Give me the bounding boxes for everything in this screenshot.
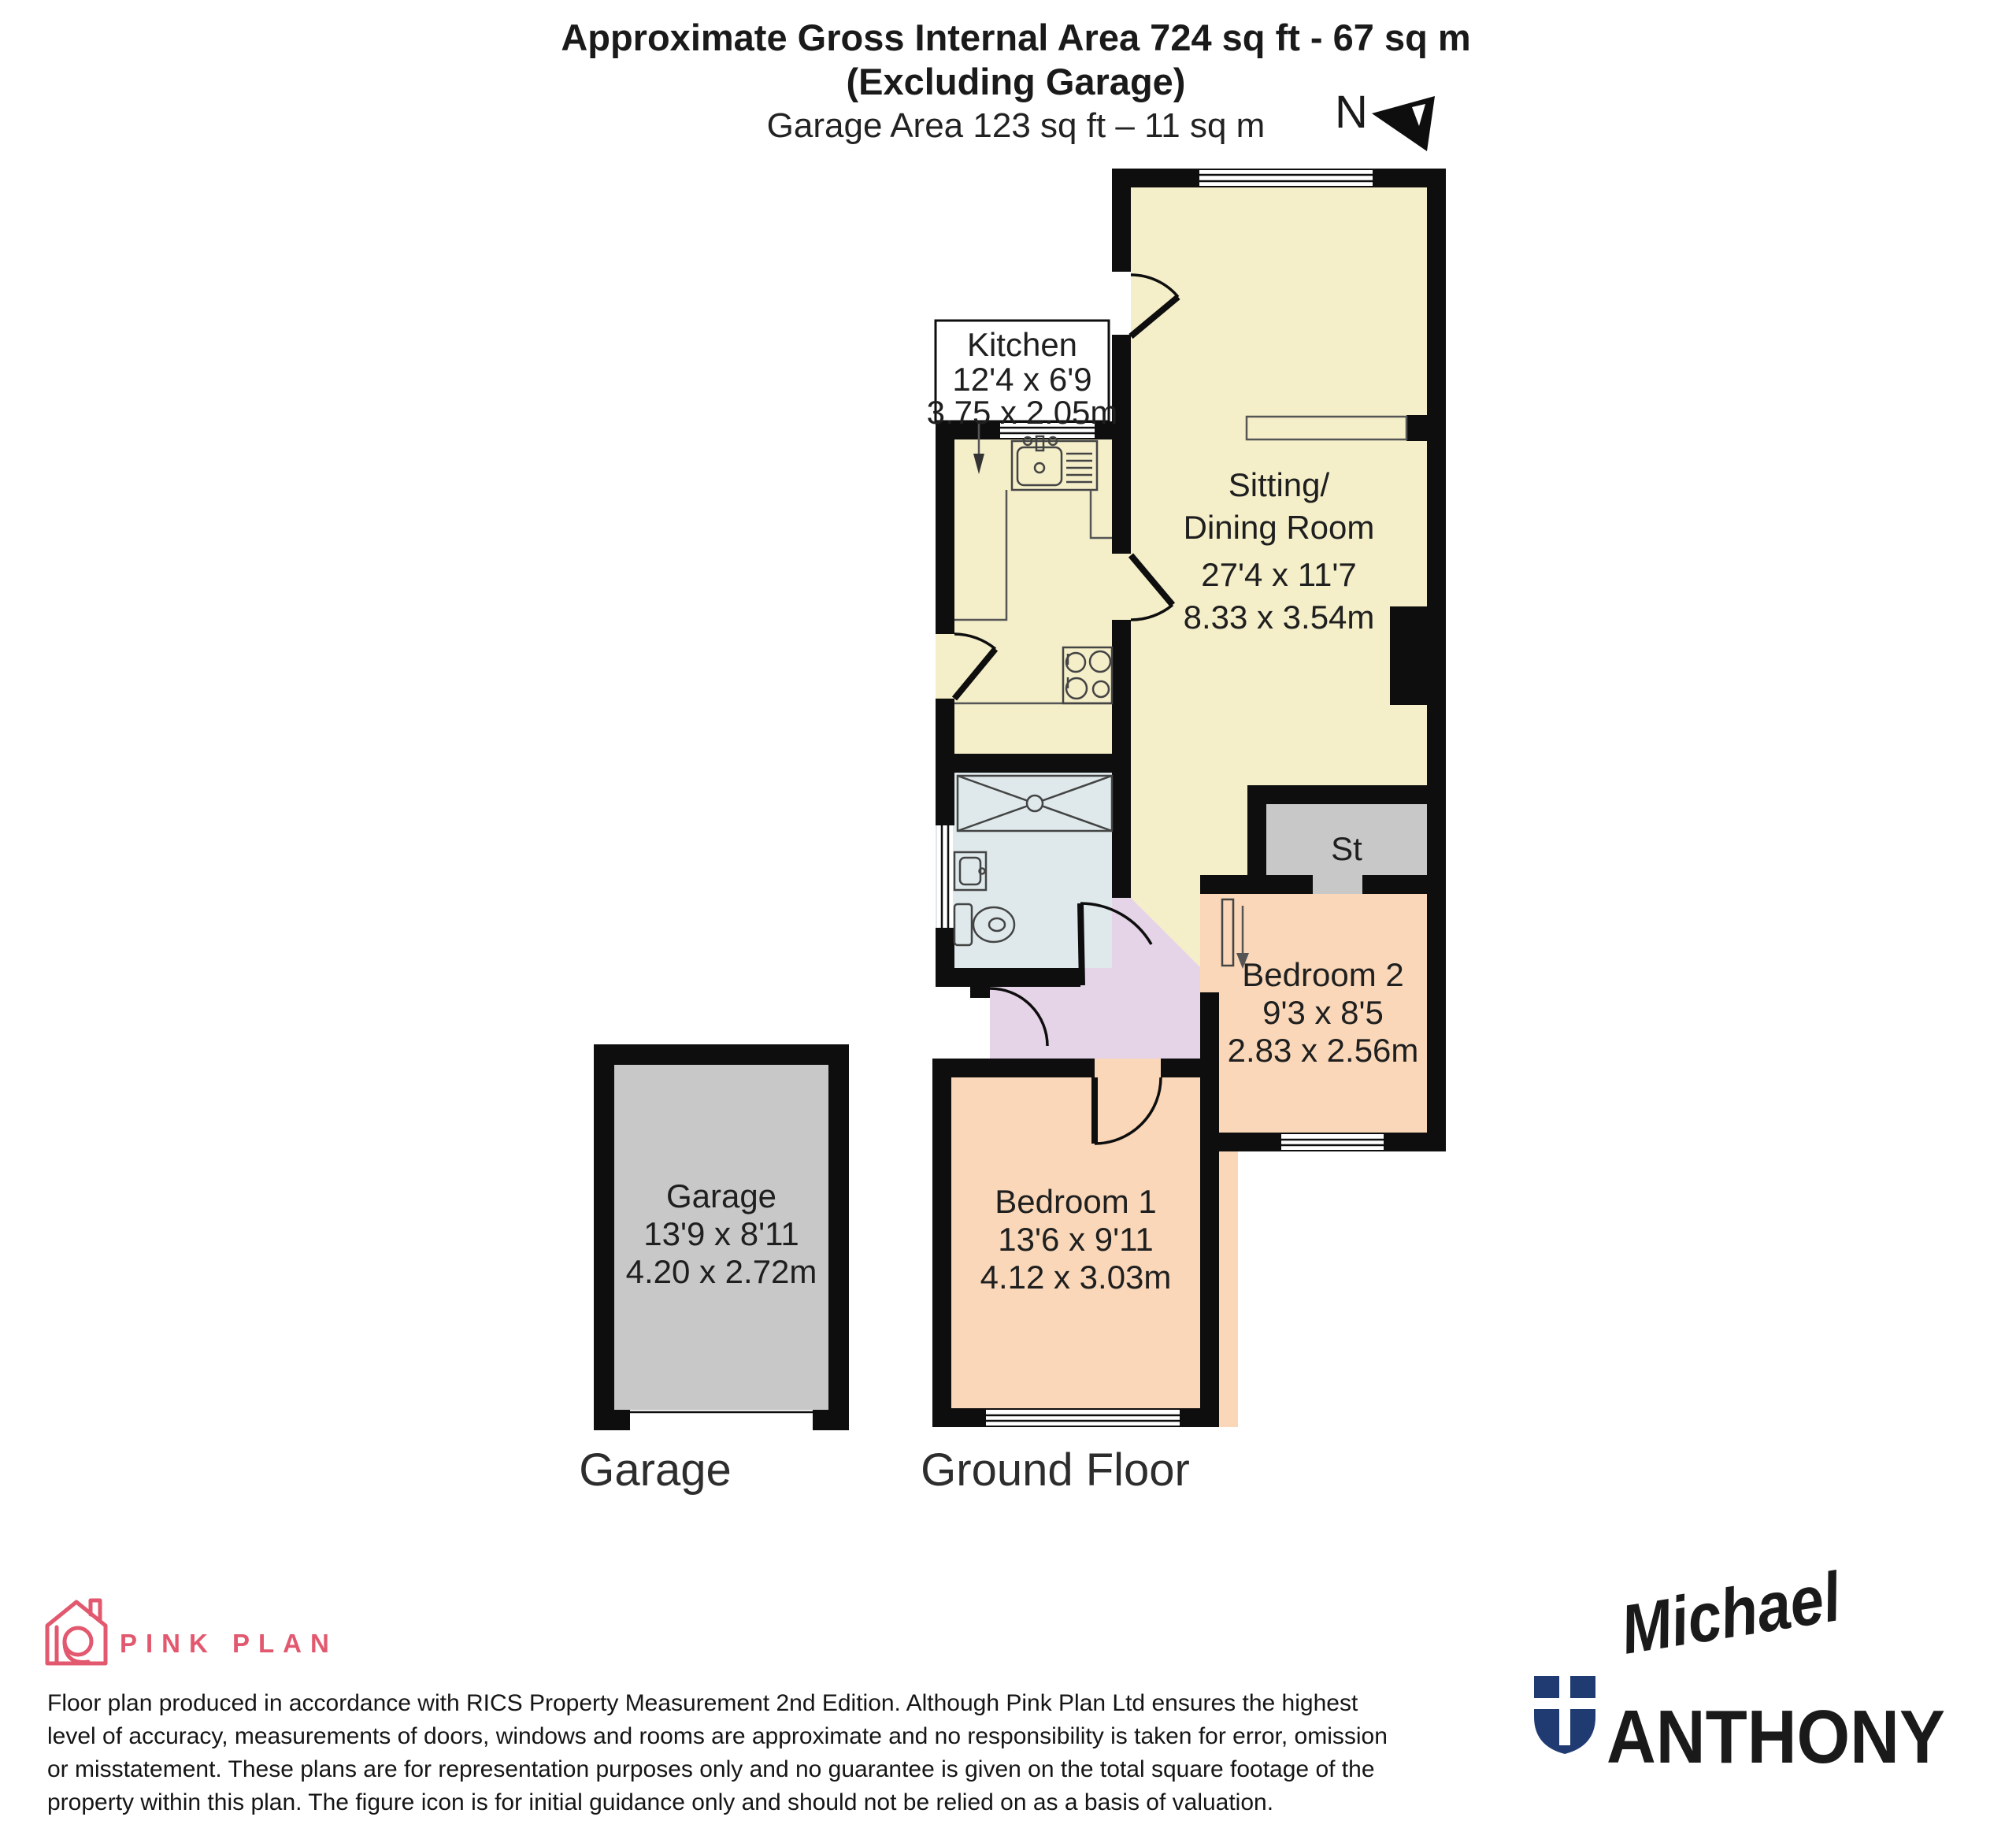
wall-chimney-breast xyxy=(1390,606,1427,705)
wall-bathroom-left-lower xyxy=(936,928,954,968)
sitting-dims-imperial: 27'4 x 11'7 xyxy=(1201,556,1356,593)
caption-garage: Garage xyxy=(579,1444,731,1496)
wall-bedroom1-left xyxy=(932,1077,951,1427)
wall-bathroom-left-upper xyxy=(936,773,954,825)
north-label: N xyxy=(1335,87,1368,138)
wall-kitchen-left-lower xyxy=(936,699,954,754)
wall-bedroom2-left xyxy=(1200,992,1219,1059)
wall-storage-bottom-left xyxy=(1200,875,1313,894)
floorplan-page: Approximate Gross Internal Area 724 sq f… xyxy=(0,0,2016,1828)
bedroom2-dims-imperial: 9'3 x 8'5 xyxy=(1262,994,1384,1031)
title-line-1: Approximate Gross Internal Area 724 sq f… xyxy=(561,17,1470,58)
kitchen-name: Kitchen xyxy=(967,326,1077,363)
title-line-3: Garage Area 123 sq ft – 11 sq m xyxy=(767,106,1266,145)
wall-bedroom1-right xyxy=(1200,1059,1219,1427)
wall-storage-bottom-right xyxy=(1362,875,1446,894)
window-sitting-top xyxy=(1199,170,1373,186)
disclaimer-line-1: Floor plan produced in accordance with R… xyxy=(47,1690,1358,1716)
caption-ground-floor: Ground Floor xyxy=(921,1444,1190,1496)
disclaimer-line-4: property within this plan. The figure ic… xyxy=(47,1789,1273,1815)
window-bathroom xyxy=(937,825,953,928)
sitting-name-2: Dining Room xyxy=(1184,509,1375,546)
garage-block: Garage 13'9 x 8'11 4.20 x 2.72m xyxy=(594,1044,849,1430)
garage-door xyxy=(630,1410,813,1430)
window-bedroom2 xyxy=(1281,1134,1384,1150)
kitchen-area xyxy=(936,421,1131,773)
bedroom2-dims-metric: 2.83 x 2.56m xyxy=(1228,1032,1419,1069)
wall-sitting-left-upper xyxy=(1112,187,1131,272)
wall-bathroom-bottom xyxy=(936,968,1080,987)
wall-bedroom1-top-left xyxy=(932,1059,1095,1077)
storage-label: St xyxy=(1331,830,1362,867)
bedroom1-name: Bedroom 1 xyxy=(995,1183,1156,1220)
wall-frontdoor-stub xyxy=(970,984,990,998)
wall-unit-block xyxy=(1406,415,1427,441)
shield-icon xyxy=(1534,1676,1595,1754)
kitchen-dims-metric: 3.75 x 2.05m xyxy=(927,394,1118,431)
sitting-name-1: Sitting/ xyxy=(1228,466,1330,503)
bedroom1-dims-metric: 4.12 x 3.03m xyxy=(980,1259,1172,1296)
disclaimer-line-2: level of accuracy, measurements of doors… xyxy=(47,1723,1388,1749)
garage-dims-metric: 4.20 x 2.72m xyxy=(626,1253,817,1290)
floorplan-canvas: Approximate Gross Internal Area 724 sq f… xyxy=(0,0,2016,1828)
wall-kitchen-sitting-upper xyxy=(1112,439,1131,554)
wall-right-exterior xyxy=(1427,169,1446,1151)
window-bedroom1 xyxy=(986,1410,1180,1426)
wall-bathroom-top xyxy=(936,754,1131,773)
disclaimer-line-3: or misstatement. These plans are for rep… xyxy=(47,1756,1375,1782)
title-line-2: (Excluding Garage) xyxy=(847,61,1186,102)
garage-name: Garage xyxy=(666,1177,776,1214)
bedroom1-dims-imperial: 13'6 x 9'11 xyxy=(998,1221,1153,1258)
garage-dims-imperial: 13'9 x 8'11 xyxy=(643,1215,799,1252)
bedroom1-label: Bedroom 1 13'6 x 9'11 4.12 x 3.03m xyxy=(980,1183,1172,1296)
agent-caps-name: ANTHONY xyxy=(1606,1695,1945,1779)
wall-storage-top xyxy=(1247,785,1446,804)
sitting-dims-metric: 8.33 x 3.54m xyxy=(1184,599,1375,636)
kitchen-dims-imperial: 12'4 x 6'9 xyxy=(952,361,1091,398)
wall-kitchen-left-upper xyxy=(936,439,954,634)
bedroom2-name: Bedroom 2 xyxy=(1242,956,1403,993)
pink-plan-wordmark: PINK PLAN xyxy=(120,1629,338,1658)
